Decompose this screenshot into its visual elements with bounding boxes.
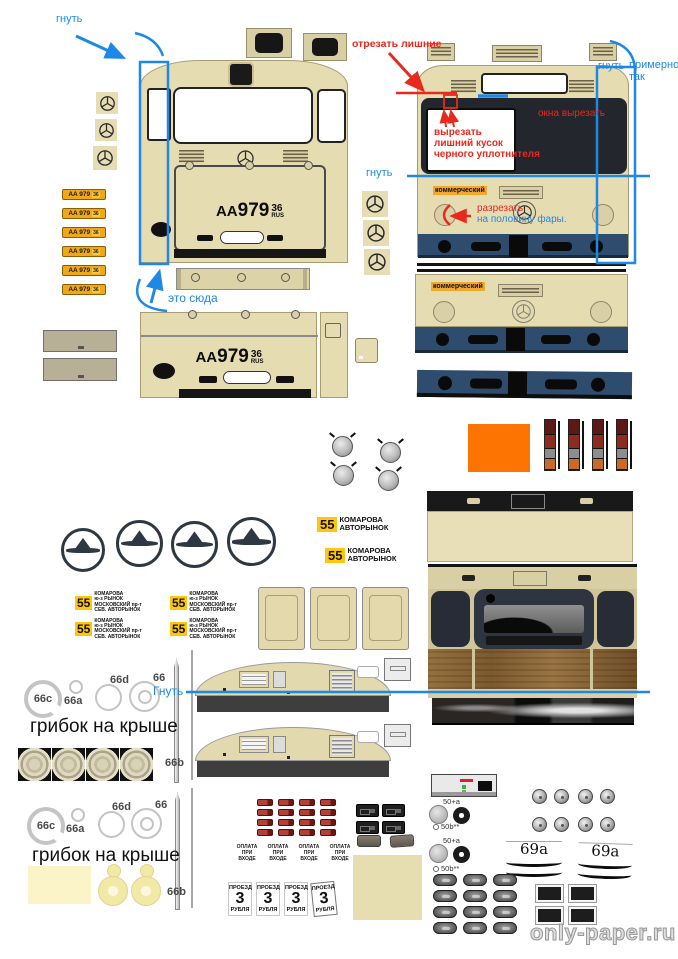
- plate-number: AA 979: [68, 286, 90, 293]
- mercedes-star-part: [363, 220, 389, 246]
- fare-number: 3: [257, 891, 279, 906]
- handrail-handle-parts: [257, 799, 336, 836]
- wheel-texture-parts: [18, 748, 153, 781]
- front-grille: [498, 284, 543, 297]
- plate-light: [382, 804, 405, 817]
- fare-sign: ПРОЕЗД 3 РУБЛЯ: [228, 882, 252, 916]
- rear-vent-right: [283, 150, 308, 163]
- part-label-50a: 50+a: [443, 797, 460, 806]
- plate-region: 36: [92, 211, 100, 217]
- steering-wheel-part: [227, 517, 276, 566]
- rear-side-flap: [320, 312, 348, 398]
- grab-handle: [433, 874, 457, 886]
- part-label-69a: 69a: [591, 844, 620, 861]
- grab-handle: [463, 922, 487, 934]
- watermark: only-paper.ru: [530, 920, 676, 946]
- part-label-66: 66: [155, 799, 167, 811]
- part-label-66a: 66a: [66, 823, 84, 835]
- roof-vent-part: [589, 43, 617, 61]
- orange-panel-part: [468, 424, 530, 472]
- dark-window: [536, 885, 563, 902]
- small-door-part: [355, 338, 378, 363]
- license-plate-large: AA979 36RUS: [141, 339, 318, 365]
- red-handle: [278, 799, 294, 806]
- route-text: КОМАРОВА ю-з РЫНОК МОСКОВСКИЙ пр-т СЕВ. …: [94, 619, 141, 641]
- gray-panel-part: [43, 330, 117, 352]
- mercedes-star-icon: [365, 194, 385, 214]
- roof-interior-part: [195, 662, 391, 712]
- dash-left-panel: [431, 591, 470, 647]
- marker-light-parts: [357, 835, 414, 847]
- payment-signs: ОПЛАТА ПРИ ВХОДЕОПЛАТА ПРИ ВХОДЕОПЛАТА П…: [235, 845, 352, 862]
- route-text: КОМАРОВА ю-з РЫНОК МОСКОВСКИЙ пр-т СЕВ. …: [189, 592, 236, 614]
- part-69a: 69a: [506, 841, 562, 877]
- route-sign-55-small: 55 КОМАРОВА ю-з РЫНОК МОСКОВСКИЙ пр-т СЕ…: [170, 619, 248, 641]
- rear-handle-slot: [223, 371, 271, 384]
- note-cut-excess: отрезать лишние: [352, 39, 442, 51]
- dark-window-parts: [536, 885, 596, 924]
- route-line2: АВТОРЫНОК: [339, 523, 388, 532]
- bus-rear-body-part: AA979 36RUS: [140, 60, 348, 263]
- tail-light-unit: [592, 419, 608, 471]
- license-plate-small: AA 979 36: [62, 246, 106, 257]
- roof-vent-part: [492, 45, 542, 62]
- part-66d: [98, 811, 125, 838]
- fare-bottom: РУБЛЯ: [229, 907, 251, 913]
- route-sign-55-small: 55 КОМАРОВА ю-з РЫНОК МОСКОВСКИЙ пр-т СЕ…: [75, 592, 153, 614]
- plate-letters: AA: [195, 350, 217, 365]
- route-signs-55-small: 55 КОМАРОВА ю-з РЫНОК МОСКОВСКИЙ пр-т СЕ…: [75, 592, 251, 640]
- note-bend-front: гнуть: [366, 167, 392, 179]
- part-label-50b: 50b**: [433, 822, 459, 831]
- hubcap-part: [380, 442, 401, 463]
- hubcap-part: [333, 465, 354, 486]
- part-label-50b: 50b**: [433, 864, 459, 873]
- grab-handle: [433, 890, 457, 902]
- hubcap-part: [332, 436, 353, 457]
- front-star: [512, 300, 535, 323]
- part-50-gray-disc: [429, 844, 448, 863]
- rivet-strip-part: [176, 268, 310, 290]
- license-plate-small: AA 979 36: [62, 265, 106, 276]
- route-sign-55-large: 55 КОМАРОВААВТОРЫНОК: [317, 516, 388, 533]
- chrome-light: [578, 817, 593, 832]
- route-sign-55-small: 55 КОМАРОВА ю-з РЫНОК МОСКОВСКИЙ пр-т СЕ…: [170, 592, 248, 614]
- wood-trim: [428, 649, 637, 689]
- part-66c: 66c: [27, 807, 65, 845]
- grab-handle: [433, 906, 457, 918]
- plate-number: AA 979: [68, 248, 90, 255]
- red-handle: [320, 809, 336, 816]
- fare-sign: ПРОЕЗД 3 РУБЛЯ: [310, 881, 337, 917]
- mercedes-star-part: [362, 191, 388, 217]
- plate-region: 36: [92, 230, 100, 236]
- part-label-66d: 66d: [110, 674, 129, 686]
- rear-window-sliver: [147, 88, 171, 141]
- plate-digits: 979: [238, 202, 270, 219]
- chrome-light: [554, 789, 569, 804]
- grab-handle: [463, 874, 487, 886]
- note-mushroom-2: грибок на крыше: [32, 845, 180, 867]
- note-bend-roof: Гнуть: [153, 685, 183, 698]
- mercedes-star-icon: [96, 149, 114, 167]
- grab-handle: [463, 890, 487, 902]
- chrome-light: [578, 789, 593, 804]
- interior-panel-part: [427, 489, 633, 562]
- red-handle: [257, 799, 273, 806]
- part-label-66c: 66c: [34, 693, 52, 705]
- chrome-light-parts: [532, 789, 569, 832]
- dash-windshield: [484, 605, 584, 633]
- wheel-texture: [86, 748, 119, 781]
- this-goes-here-arrow: [151, 273, 159, 303]
- plate-letters: AA: [216, 204, 238, 219]
- door-parts: [258, 587, 409, 650]
- rear-window-small: [317, 89, 346, 143]
- hubcap-part: [378, 470, 399, 491]
- part-66c: 66c: [24, 680, 62, 718]
- fare-number: 3: [229, 891, 251, 906]
- red-handle: [299, 809, 315, 816]
- part-label-66b: 66b: [165, 757, 184, 769]
- plate-region: 36: [92, 192, 100, 198]
- papercraft-sheet: гнуть отрезать лишние гнуть примерно так…: [0, 0, 678, 959]
- grab-handle: [493, 906, 517, 918]
- rear-handle-slot: [220, 231, 264, 244]
- pale-yellow-part: [28, 866, 91, 904]
- commercial-label: коммерческий: [433, 186, 487, 195]
- door-part: [310, 587, 357, 650]
- plate-region: 36: [271, 204, 282, 213]
- small-plate-part: [384, 724, 411, 747]
- mercedes-star-part: [96, 92, 118, 114]
- red-handle: [278, 819, 294, 826]
- rear-exhaust: [151, 222, 171, 237]
- rear-roof-hatch: [228, 62, 254, 87]
- thin-strip-part: [191, 788, 193, 908]
- plate-region: 36: [92, 268, 100, 274]
- part-label-66d: 66d: [112, 801, 131, 813]
- route-text: КОМАРОВА ю-з РЫНОК МОСКОВСКИЙ пр-т СЕВ. …: [189, 619, 236, 641]
- chrome-light-parts: [578, 789, 615, 832]
- fare-bottom: РУБЛЯ: [314, 905, 337, 913]
- note-this-goes-here: это сюда: [168, 292, 218, 305]
- chrome-light: [532, 817, 547, 832]
- route-number: 55: [170, 596, 187, 610]
- note-cut-headlight-1: разрезать: [477, 203, 523, 214]
- bus-front-body-part: коммерческий: [417, 65, 629, 257]
- tail-light-parts: [544, 419, 632, 471]
- chrome-light: [554, 817, 569, 832]
- route-number: 55: [325, 548, 345, 563]
- part-66d: [95, 684, 122, 711]
- mercedes-star-part: [364, 249, 390, 275]
- license-plate-large: AA979 36RUS: [174, 189, 326, 219]
- license-plate-small: AA 979 36: [62, 227, 106, 238]
- small-plates-stack: AA 979 36 AA 979 36 AA 979 36 AA 979 36 …: [62, 189, 106, 295]
- note-mushroom-1: грибок на крыше: [30, 716, 178, 738]
- dashboard-part: [428, 564, 637, 698]
- plate-digits: 979: [217, 348, 249, 365]
- front-grille: [499, 186, 543, 199]
- roof-cap-large: [98, 876, 128, 906]
- headlight-left: [433, 301, 455, 323]
- route-sign-55-small: 55 КОМАРОВА ю-з РЫНОК МОСКОВСКИЙ пр-т СЕ…: [75, 619, 153, 641]
- license-plate-small: AA 979 36: [62, 208, 106, 219]
- marker-light: [357, 835, 381, 847]
- part-69a: 69a: [577, 842, 632, 880]
- wheel-texture: [52, 748, 85, 781]
- plate-light: [356, 804, 379, 817]
- red-handle: [299, 829, 315, 836]
- bend-arrow-top-left: [76, 36, 122, 57]
- fare-signs: ПРОЕЗД 3 РУБЛЯ ПРОЕЗД 3 РУБЛЯ ПРОЕЗД 3 Р…: [228, 882, 336, 916]
- small-plate-part: [384, 658, 411, 681]
- part-50-black-disc: [453, 846, 470, 863]
- red-handle: [299, 799, 315, 806]
- red-handle: [320, 819, 336, 826]
- destination-board-window: [481, 73, 568, 94]
- plate-number: AA 979: [68, 191, 90, 198]
- roof-hatch-part: [303, 33, 347, 61]
- tail-light-unit: [616, 419, 632, 471]
- part-66a: [69, 680, 83, 694]
- part-label-66a: 66a: [64, 695, 82, 707]
- marker-light: [390, 834, 415, 848]
- route-number: 55: [170, 622, 187, 636]
- part-label-66c: 66c: [37, 820, 55, 832]
- route-text: КОМАРОВА ю-з РЫНОК МОСКОВСКИЙ пр-т СЕВ. …: [94, 592, 141, 614]
- door-part: [258, 587, 305, 650]
- part-66: [131, 808, 162, 839]
- payment-sign: ОПЛАТА ПРИ ВХОДЕ: [266, 845, 290, 862]
- mercedes-star-part: [95, 119, 117, 141]
- bumper-part: [417, 370, 632, 399]
- part-66a: [71, 808, 85, 822]
- roof-hatch-part: [246, 28, 292, 58]
- plate-light: [356, 821, 379, 834]
- note-approximately: примерно так: [629, 59, 678, 84]
- grab-handle: [493, 890, 517, 902]
- rear-exhaust: [153, 363, 175, 379]
- steering-wheel-part: [171, 521, 218, 568]
- radio-panel-part: [431, 774, 497, 797]
- chrome-light: [600, 817, 615, 832]
- mercedes-star-icon: [99, 95, 116, 112]
- red-handle: [278, 829, 294, 836]
- plate-number: AA 979: [68, 267, 90, 274]
- note-cut-seal: вырезать лишний кусок черного уплотнител…: [434, 127, 540, 161]
- wheel-texture: [18, 748, 51, 781]
- grab-handle: [433, 922, 457, 934]
- beige-square-part: [353, 855, 422, 920]
- roof-interior-part: [195, 727, 391, 777]
- undercarriage-photo-strip: [432, 698, 634, 725]
- grab-handle-parts: [433, 874, 517, 934]
- wheel-texture: [120, 748, 153, 781]
- mercedes-star-icon: [366, 223, 386, 243]
- bus-rear-lower-part: AA979 36RUS: [140, 312, 317, 398]
- fare-number: 3: [285, 891, 307, 906]
- steering-wheel-part: [116, 520, 163, 567]
- dash-right-panel: [597, 591, 634, 647]
- grab-handle: [493, 874, 517, 886]
- red-handle: [278, 809, 294, 816]
- plate-country: RUS: [271, 213, 284, 219]
- plate-country: RUS: [251, 359, 264, 365]
- part-label-66: 66: [153, 672, 165, 684]
- steering-wheel-part: [61, 528, 105, 572]
- plate-region: 36: [92, 249, 100, 255]
- red-handle: [320, 829, 336, 836]
- front-bumper: [418, 234, 628, 258]
- note-cut-headlight-2: на половину фары.: [477, 214, 567, 225]
- part-label-50a: 50+a: [443, 836, 460, 845]
- mercedes-star-icon: [98, 122, 115, 139]
- route-number: 55: [317, 517, 337, 532]
- mercedes-star-icon: [515, 303, 532, 320]
- license-plate-small: AA 979 36: [62, 284, 106, 295]
- chrome-light: [532, 789, 547, 804]
- part-label-66b: 66b: [167, 886, 186, 898]
- payment-sign: ОПЛАТА ПРИ ВХОДЕ: [235, 845, 259, 862]
- red-handle: [320, 799, 336, 806]
- plate-light-parts: [356, 804, 405, 834]
- route-sign-55-large: 55 КОМАРОВААВТОРЫНОК: [325, 547, 396, 564]
- mercedes-star-icon: [367, 252, 387, 272]
- route-number: 55: [75, 596, 92, 610]
- chrome-light: [600, 789, 615, 804]
- plate-region: 36: [251, 350, 262, 359]
- rear-window-large: [173, 87, 313, 144]
- fare-bottom: РУБЛЯ: [285, 907, 307, 913]
- thin-strip-part: [191, 650, 193, 780]
- dark-window: [569, 885, 596, 902]
- plate-region: 36: [92, 287, 100, 293]
- front-roof-vent: [451, 80, 476, 93]
- tail-light-unit: [544, 419, 560, 471]
- door-part: [362, 587, 409, 650]
- headlight-right: [590, 301, 612, 323]
- red-handle: [257, 809, 273, 816]
- front-bumper: [415, 327, 628, 353]
- dash-center-panel: [474, 589, 594, 649]
- tail-light-unit: [568, 419, 584, 471]
- part-label-69a: 69a: [520, 842, 548, 858]
- fare-sign: ПРОЕЗД 3 РУБЛЯ: [256, 882, 280, 916]
- red-handle: [299, 819, 315, 826]
- red-handle: [257, 829, 273, 836]
- red-handle: [257, 819, 273, 826]
- plate-number: AA 979: [68, 229, 90, 236]
- front-roof-vent: [569, 80, 594, 93]
- bus-front-lower-part: коммерческий: [415, 263, 628, 354]
- route-line2: АВТОРЫНОК: [347, 554, 396, 563]
- plate-number: AA 979: [68, 210, 90, 217]
- commercial-label: коммерческий: [431, 282, 485, 291]
- route-number: 55: [75, 622, 92, 636]
- note-bend-top-right: гнуть: [598, 60, 624, 72]
- headlight-left: [434, 204, 456, 226]
- roof-cap-large: [131, 876, 161, 906]
- fare-bottom: РУБЛЯ: [257, 907, 279, 913]
- grab-handle: [493, 922, 517, 934]
- note-cut-windows: окна вырезать: [538, 108, 605, 119]
- gray-panel-part: [43, 358, 117, 381]
- fare-sign: ПРОЕЗД 3 РУБЛЯ: [284, 882, 308, 916]
- grab-handle: [463, 906, 487, 918]
- headlight-right: [592, 204, 614, 226]
- payment-sign: ОПЛАТА ПРИ ВХОДЕ: [328, 845, 352, 862]
- payment-sign: ОПЛАТА ПРИ ВХОДЕ: [297, 845, 321, 862]
- mercedes-star-part: [93, 146, 117, 170]
- license-plate-small: AA 979 36: [62, 189, 106, 200]
- plate-light: [382, 821, 405, 834]
- note-bend-top-left: гнуть: [56, 13, 82, 25]
